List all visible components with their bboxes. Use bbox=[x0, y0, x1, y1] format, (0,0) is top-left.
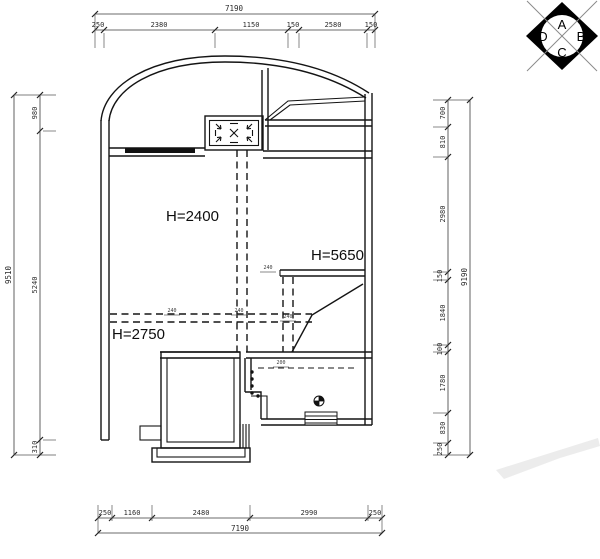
dim-left-total: 9510 bbox=[4, 265, 13, 284]
dim-right-seg-1: 810 bbox=[439, 136, 447, 149]
beam-dim-1: 240 bbox=[164, 308, 180, 315]
dim-right-seg-2: 2980 bbox=[439, 206, 447, 223]
dim-top-seg-3: 150 bbox=[287, 21, 300, 29]
beam-dim-4: 240 bbox=[260, 265, 276, 272]
dim-left-seg-2: 310 bbox=[31, 441, 39, 454]
bottom-left-room bbox=[140, 352, 250, 462]
dim-left-seg-0: 980 bbox=[31, 107, 39, 120]
dim-bottom-total: 7190 bbox=[231, 524, 250, 533]
compass-letter-bottom: C bbox=[557, 45, 566, 60]
beam-dim-3-text: 240 bbox=[283, 314, 292, 320]
dim-bottom-seg-1: 1160 bbox=[124, 509, 141, 517]
top-right-bay bbox=[265, 97, 372, 126]
dim-right-seg-5: 100 bbox=[436, 343, 444, 356]
watermark-streak bbox=[496, 438, 600, 479]
dim-top-seg-1: 2380 bbox=[151, 21, 168, 29]
floor-drain-icon bbox=[314, 396, 324, 406]
label-h2400: H=2400 bbox=[166, 208, 219, 225]
dim-top-seg-5: 150 bbox=[365, 21, 378, 29]
kitchen-wall bbox=[109, 148, 372, 159]
ceiling-beams-dashed bbox=[110, 150, 312, 352]
dim-bottom-seg-4: 250 bbox=[369, 509, 382, 517]
dim-right-seg-0: 700 bbox=[439, 107, 447, 120]
dimension-right: 700 810 2980 150 1840 100 1780 830 250 9… bbox=[433, 97, 473, 458]
dim-right-seg-3: 150 bbox=[436, 270, 444, 283]
compass-letter-left: D bbox=[538, 29, 547, 44]
dim-bottom-seg-3: 2990 bbox=[301, 509, 318, 517]
floor-plan-canvas: 7190 250 2380 1150 150 2580 150 250 1160… bbox=[0, 0, 600, 559]
dimension-top: 7190 250 2380 1150 150 2580 150 bbox=[92, 4, 378, 48]
compass-letter-right: B bbox=[577, 29, 586, 44]
dim-bottom-seg-0: 250 bbox=[99, 509, 112, 517]
dim-top-total: 7190 bbox=[225, 4, 244, 13]
entry-platform bbox=[152, 448, 250, 462]
right-wall bbox=[365, 93, 372, 425]
fixture-dots bbox=[250, 370, 259, 397]
sloped-ceiling-line bbox=[292, 284, 363, 352]
flue-shaft-icon bbox=[216, 124, 253, 143]
dim-top-seg-2: 1150 bbox=[243, 21, 260, 29]
beam-dim-4-text: 240 bbox=[263, 265, 272, 271]
dimension-left: 9510 980 5240 310 bbox=[4, 92, 56, 458]
flue-shaft-box bbox=[205, 116, 263, 150]
dim-left-seg-1: 5240 bbox=[31, 277, 39, 294]
bathroom-walls bbox=[160, 352, 372, 425]
compass-icon: A B C D bbox=[526, 1, 598, 71]
beam-dim-2-text: 240 bbox=[234, 308, 243, 314]
beam-dim-1-text: 240 bbox=[167, 308, 176, 314]
label-h5650: H=5650 bbox=[311, 247, 364, 264]
dim-right-seg-7: 830 bbox=[439, 422, 447, 435]
dim-right-total: 9190 bbox=[460, 267, 469, 286]
label-h2750: H=2750 bbox=[112, 326, 165, 343]
compass-letter-top: A bbox=[558, 17, 567, 32]
left-wall bbox=[101, 120, 109, 440]
dim-top-seg-4: 2580 bbox=[325, 21, 342, 29]
curved-wall bbox=[101, 56, 369, 121]
bathroom-threshold bbox=[305, 412, 337, 425]
middle-wall bbox=[280, 270, 365, 276]
wall-nib bbox=[140, 426, 161, 440]
window-sill-bar bbox=[125, 148, 195, 154]
beam-dim-5: 200 bbox=[273, 360, 289, 367]
dimension-bottom: 250 1160 2480 2990 250 7190 bbox=[95, 505, 385, 536]
door-jamb-lines bbox=[240, 424, 249, 448]
beam-dim-2: 240 bbox=[231, 308, 247, 315]
dim-right-seg-8: 250 bbox=[436, 443, 444, 456]
floor-plan-page: 7190 250 2380 1150 150 2580 150 250 1160… bbox=[0, 0, 600, 559]
dim-right-seg-6: 1780 bbox=[439, 375, 447, 392]
dim-right-seg-4: 1840 bbox=[439, 305, 447, 322]
beam-dim-5-text: 200 bbox=[276, 360, 285, 366]
dim-top-seg-0: 250 bbox=[92, 21, 105, 29]
dim-bottom-seg-2: 2480 bbox=[193, 509, 210, 517]
